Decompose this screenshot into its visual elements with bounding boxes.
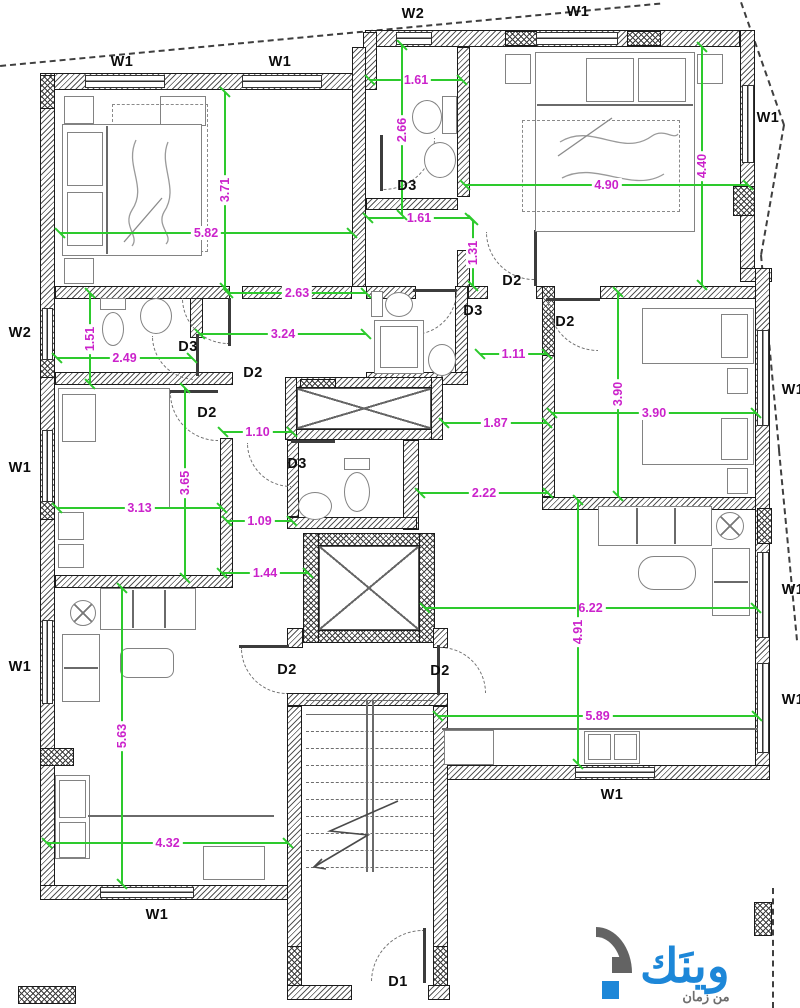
window-label: W1 bbox=[601, 787, 624, 803]
pillow bbox=[67, 192, 103, 246]
toilet-bowl bbox=[102, 312, 124, 346]
nightstand bbox=[64, 96, 94, 124]
window-label: W2 bbox=[402, 6, 425, 22]
wall-post bbox=[505, 31, 537, 46]
window-label: W1 bbox=[782, 582, 800, 598]
dimension-label: 1.11 bbox=[499, 347, 529, 361]
pillow bbox=[67, 132, 103, 186]
stair-tread bbox=[306, 700, 433, 701]
dimension-label: 5.63 bbox=[115, 721, 129, 751]
dimension-label: 1.61 bbox=[404, 211, 434, 225]
nightstand bbox=[64, 258, 94, 284]
dimension-label: 1.61 bbox=[401, 73, 431, 87]
elevator-wall bbox=[303, 533, 435, 546]
pillow bbox=[721, 314, 748, 358]
dimension-label: 1.51 bbox=[83, 323, 97, 353]
door-leaf bbox=[228, 298, 231, 346]
dimension-label: 2.49 bbox=[109, 351, 139, 365]
pillow bbox=[62, 394, 96, 442]
window bbox=[757, 663, 769, 753]
nightstand bbox=[58, 512, 84, 540]
window-label: W1 bbox=[782, 382, 800, 398]
window-label: W1 bbox=[111, 54, 134, 70]
wall bbox=[600, 286, 756, 299]
site-boundary-line bbox=[760, 125, 785, 255]
toilet-tank bbox=[100, 298, 126, 310]
kitchen-sink bbox=[59, 822, 86, 858]
toilet-bowl bbox=[385, 292, 413, 317]
site-boundary-line bbox=[778, 450, 798, 640]
window-label: W1 bbox=[146, 907, 169, 923]
plant-icon bbox=[70, 600, 96, 626]
wall-post bbox=[287, 946, 302, 986]
dimension-label: 4.32 bbox=[152, 836, 182, 850]
bed-line bbox=[106, 126, 108, 254]
door-label: D1 bbox=[388, 974, 408, 990]
wall bbox=[428, 985, 450, 1000]
window-label: W1 bbox=[567, 4, 590, 20]
wall bbox=[287, 628, 303, 648]
elevator-wall bbox=[303, 630, 435, 643]
door-label: D3 bbox=[397, 178, 417, 194]
wall bbox=[55, 372, 233, 385]
window-label: W1 bbox=[9, 659, 32, 675]
window-label: W1 bbox=[9, 460, 32, 476]
side-table bbox=[727, 468, 748, 494]
window-label: W2 bbox=[9, 325, 32, 341]
window-label: W1 bbox=[269, 54, 292, 70]
wall bbox=[433, 628, 448, 648]
window bbox=[757, 330, 769, 426]
window bbox=[242, 75, 322, 88]
dimension-label: 1.09 bbox=[244, 514, 274, 528]
pillow bbox=[721, 418, 748, 460]
nightstand bbox=[505, 54, 531, 84]
wall bbox=[352, 47, 366, 287]
wall bbox=[431, 377, 443, 440]
kitchen-sink bbox=[59, 780, 86, 818]
wall-post bbox=[757, 508, 772, 544]
window bbox=[536, 32, 618, 45]
door-swing-arc bbox=[247, 443, 291, 487]
sofa-cushion-line bbox=[674, 508, 676, 544]
toilet-tank bbox=[344, 458, 370, 470]
door-leaf bbox=[291, 440, 335, 443]
wall-post bbox=[433, 946, 448, 986]
window bbox=[575, 767, 655, 778]
door-label: D2 bbox=[430, 663, 450, 679]
sink-basin bbox=[614, 734, 637, 760]
dimension-label: 3.24 bbox=[268, 327, 298, 341]
logo-tagline: من زمان bbox=[682, 989, 729, 1005]
dimension-label: 2.22 bbox=[469, 486, 499, 500]
door-label: D2 bbox=[277, 662, 297, 678]
window bbox=[42, 620, 53, 704]
dimension-label: 3.71 bbox=[218, 175, 232, 205]
stair-direction-arrow bbox=[300, 795, 405, 877]
dimension-label: 5.82 bbox=[191, 226, 221, 240]
door-leaf bbox=[423, 928, 426, 983]
pillow bbox=[586, 58, 634, 102]
wall-post bbox=[300, 379, 336, 388]
dimension-label: 1.31 bbox=[466, 238, 480, 268]
window bbox=[100, 887, 194, 898]
window-label: W1 bbox=[782, 692, 800, 708]
stair-tread bbox=[306, 731, 433, 732]
door-label: D2 bbox=[243, 365, 263, 381]
elevator-wall bbox=[303, 533, 319, 643]
door-label: D2 bbox=[555, 314, 575, 330]
blanket-squiggle bbox=[552, 112, 682, 212]
dimension-label: 2.63 bbox=[282, 286, 312, 300]
floor-plan-canvas: وينَك من زمان 1.614.905.821.612.633.242.… bbox=[0, 0, 800, 1008]
stair-tread bbox=[306, 748, 433, 749]
dimension-label: 3.90 bbox=[611, 379, 625, 409]
toilet-tank bbox=[371, 291, 383, 317]
sink bbox=[424, 142, 456, 178]
toilet-bowl bbox=[344, 472, 370, 512]
kitchen-island bbox=[203, 846, 265, 880]
bed-line bbox=[537, 104, 693, 106]
sofa-cushion-line bbox=[132, 590, 134, 628]
wall bbox=[457, 47, 470, 197]
sofa-cushion-line bbox=[636, 508, 638, 544]
pillow bbox=[638, 58, 686, 102]
dimension-label: 4.91 bbox=[571, 617, 585, 647]
sofa-cushion-line bbox=[164, 590, 166, 628]
sofa-cushion-line bbox=[714, 581, 748, 583]
door-leaf bbox=[534, 230, 537, 286]
toilet-tank bbox=[442, 96, 457, 134]
dimension-label: 3.65 bbox=[178, 468, 192, 498]
window bbox=[742, 85, 754, 163]
brand-logo: وينَك من زمان bbox=[592, 905, 800, 1005]
sink bbox=[140, 298, 172, 334]
shower-drain bbox=[380, 326, 418, 368]
wall bbox=[366, 198, 458, 210]
dimension-label: 3.13 bbox=[124, 501, 154, 515]
sink-basin bbox=[588, 734, 611, 760]
duct-shaft bbox=[297, 388, 431, 429]
wall bbox=[285, 429, 443, 440]
dimension-label: 2.66 bbox=[395, 115, 409, 145]
wall bbox=[455, 286, 468, 374]
plant-icon bbox=[716, 512, 744, 540]
wall bbox=[287, 517, 417, 529]
toilet-bowl bbox=[412, 100, 442, 134]
dimension-label: 5.89 bbox=[582, 709, 612, 723]
wall-post bbox=[40, 75, 55, 109]
door-label: D3 bbox=[178, 339, 198, 355]
wall bbox=[55, 575, 233, 588]
elevator-car bbox=[319, 546, 419, 630]
dimension-label: 4.40 bbox=[695, 151, 709, 181]
coffee-table bbox=[120, 648, 174, 678]
dimension-label: 4.90 bbox=[591, 178, 621, 192]
appliance bbox=[444, 730, 494, 765]
window bbox=[42, 430, 53, 502]
dimension-label: 3.90 bbox=[639, 406, 669, 420]
stair-tread bbox=[306, 782, 433, 783]
elevator-wall bbox=[419, 533, 435, 643]
site-marker bbox=[18, 986, 76, 1004]
coffee-table bbox=[638, 556, 696, 590]
wall-post bbox=[40, 748, 74, 766]
door-label: D2 bbox=[197, 405, 217, 421]
dimension-label: 1.87 bbox=[480, 416, 510, 430]
logo-wordmark: وينَك bbox=[640, 945, 730, 987]
wall-post bbox=[627, 31, 661, 46]
window bbox=[757, 552, 769, 638]
sofa bbox=[598, 506, 712, 546]
wall bbox=[287, 985, 352, 1000]
sink bbox=[298, 492, 332, 520]
wall bbox=[468, 286, 488, 299]
counter-edge bbox=[88, 815, 274, 817]
sofa-cushion-line bbox=[64, 667, 98, 669]
dimension-label: 1.10 bbox=[242, 425, 272, 439]
dimension-label: 6.22 bbox=[575, 601, 605, 615]
sink bbox=[428, 344, 456, 376]
door-label: D3 bbox=[463, 303, 483, 319]
door-label: D3 bbox=[287, 456, 307, 472]
window bbox=[85, 75, 165, 88]
logo-question-mark-icon bbox=[592, 927, 636, 1005]
nightstand bbox=[58, 544, 84, 568]
stair-tread bbox=[306, 714, 433, 715]
window-label: W1 bbox=[757, 110, 780, 126]
door-label: D2 bbox=[502, 273, 522, 289]
stair-tread bbox=[306, 765, 433, 766]
dimension-label: 1.44 bbox=[250, 566, 280, 580]
sofa bbox=[100, 588, 196, 630]
side-table bbox=[727, 368, 748, 394]
